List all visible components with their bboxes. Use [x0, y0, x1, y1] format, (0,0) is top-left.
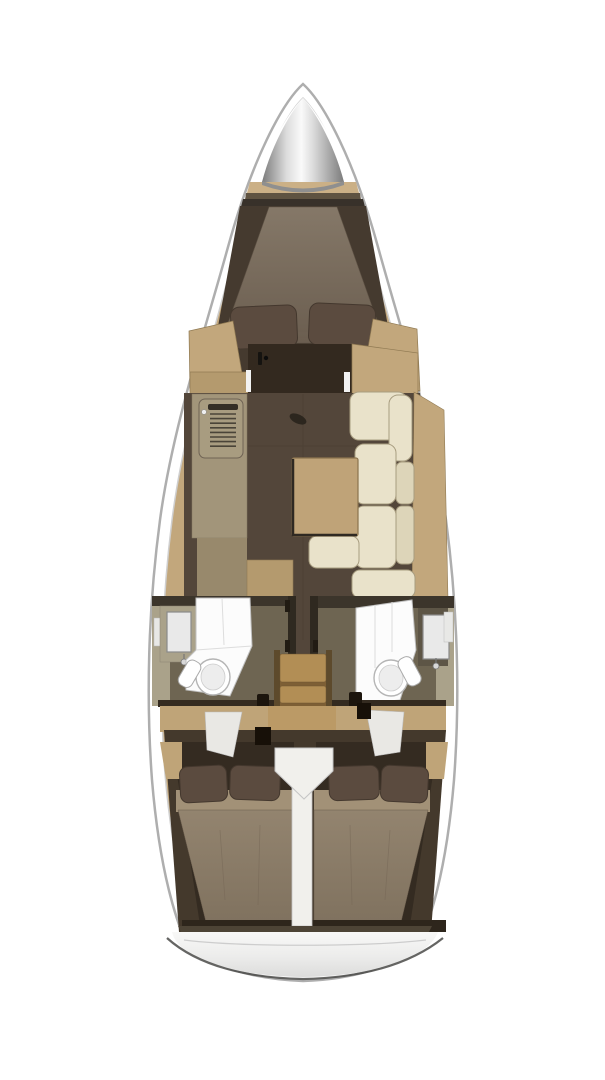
settee-seat-1	[355, 444, 396, 504]
stair-tread-2	[280, 686, 326, 703]
aft-pillow-port-2	[229, 765, 280, 801]
bow-gap	[241, 199, 365, 207]
stair-tread-1	[280, 654, 326, 682]
v-berth-pillow-port	[230, 305, 298, 350]
galley-counter-lower	[197, 538, 247, 597]
aft-hardware-starboard	[357, 703, 371, 719]
port-head-hinge-2	[285, 640, 290, 652]
aft-hardware-port	[255, 727, 271, 745]
v-berth-pillow-starboard	[308, 303, 376, 348]
transom-deck	[172, 932, 438, 977]
bulkhead-cabinet-starboard	[352, 344, 418, 394]
transom	[167, 926, 443, 979]
door-jamb-right	[344, 372, 350, 392]
bulkhead-cabinet-port	[190, 372, 248, 394]
starboard-hull-window	[444, 612, 453, 642]
door-handle	[258, 352, 262, 365]
settee-cushion-bottom	[352, 570, 415, 598]
settee-backrest-1	[396, 462, 414, 504]
aft-pillow-starboard-1	[328, 765, 379, 801]
port-head-hinge-1	[285, 600, 290, 612]
boat-floorplan-diagram	[0, 0, 605, 1080]
forward-cabin-door	[248, 344, 352, 394]
boat-floorplan-page	[0, 0, 605, 1080]
settee-backrest-2	[396, 506, 414, 564]
stove-knob	[202, 410, 207, 415]
starboard-faucet	[433, 663, 439, 669]
stove-lid-bar	[208, 404, 238, 410]
galley-block	[247, 560, 293, 597]
settee-seat-2	[355, 506, 396, 568]
port-toilet-seat	[201, 664, 225, 690]
aft-pillow-starboard-2	[380, 765, 429, 803]
door-jamb-left	[246, 370, 251, 392]
settee-shelf-wood	[412, 392, 448, 600]
starboard-head-hinge	[313, 640, 318, 652]
saloon-table	[292, 458, 358, 536]
door-knob	[264, 356, 268, 360]
settee-chaise	[309, 536, 359, 568]
port-vanity-mirror	[167, 612, 191, 652]
aft-pillow-port-1	[179, 765, 228, 803]
